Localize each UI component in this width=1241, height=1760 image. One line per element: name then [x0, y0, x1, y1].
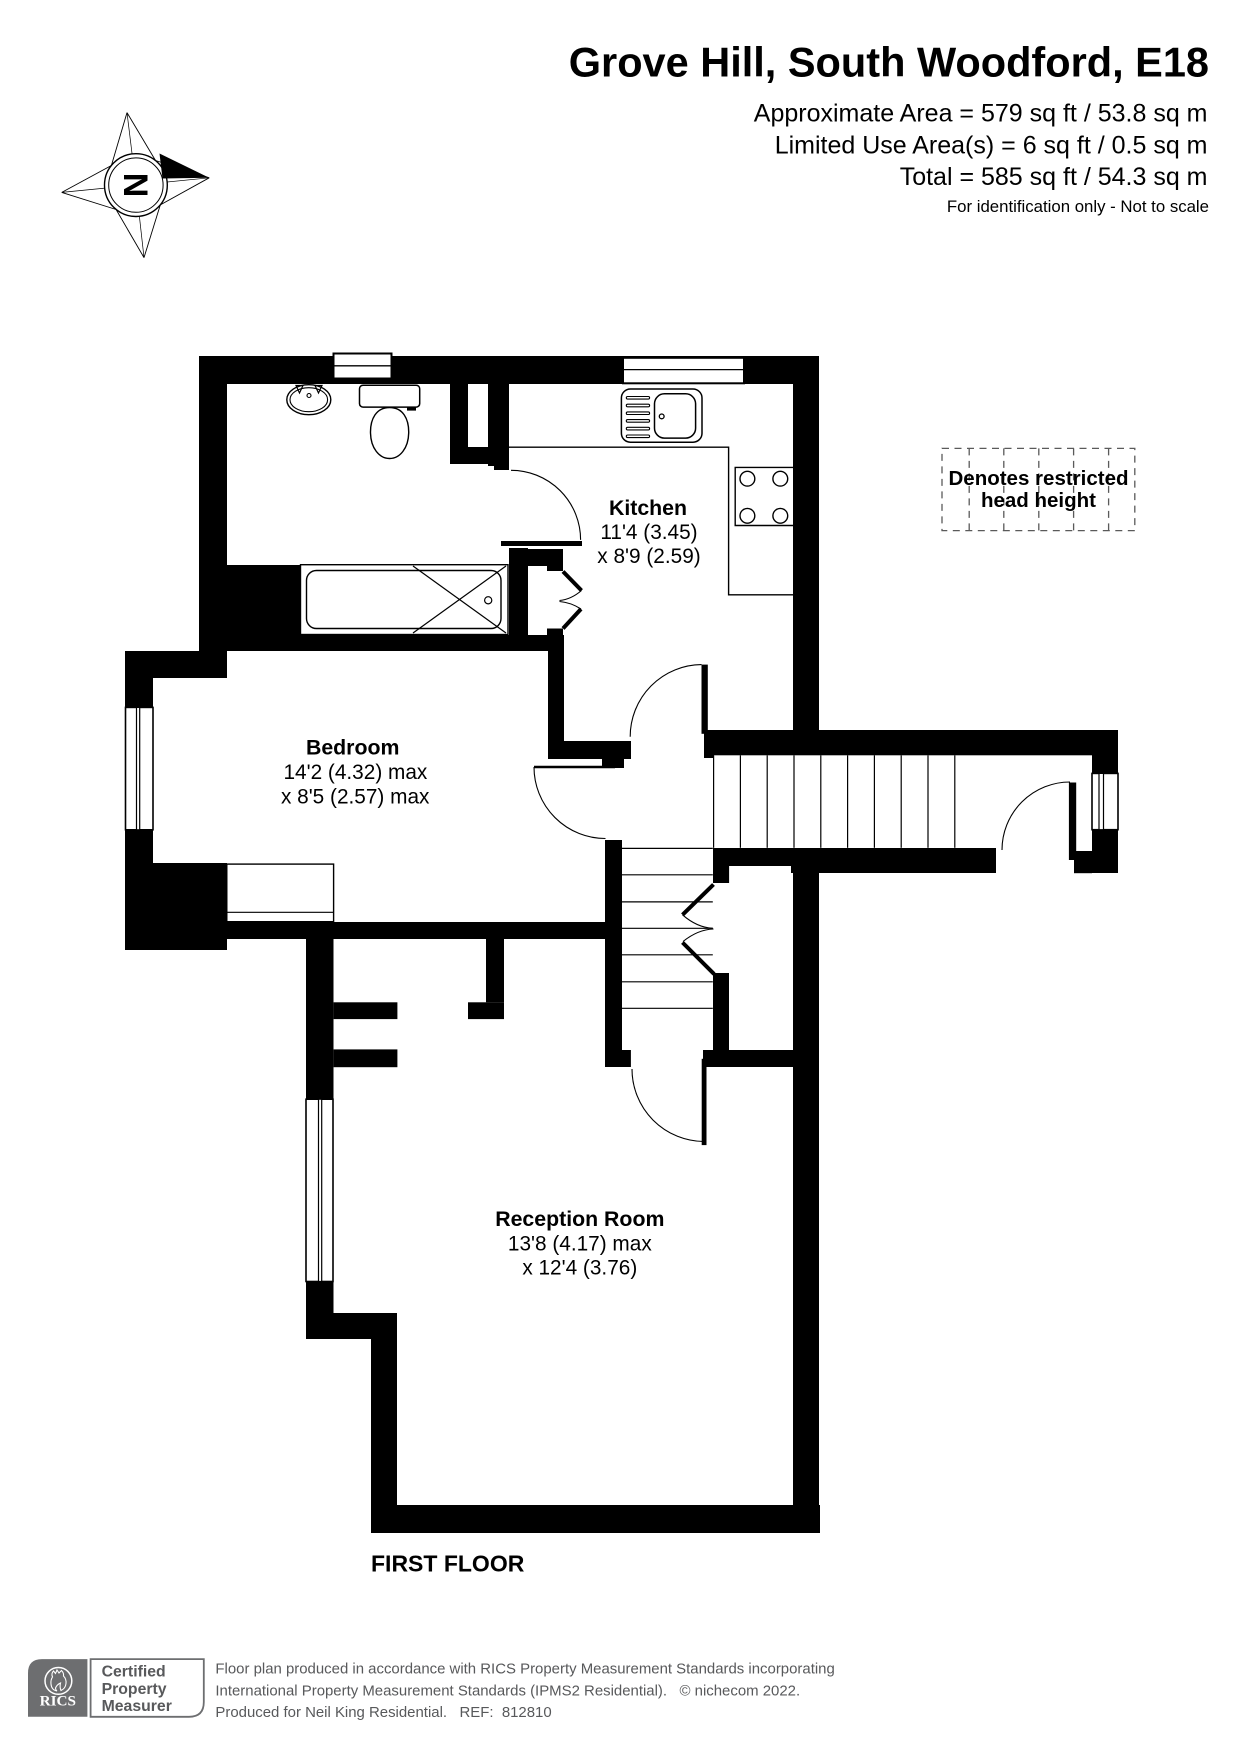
svg-text:N: N — [116, 173, 154, 198]
svg-text:RICS: RICS — [40, 1693, 76, 1710]
svg-text:13'8 (4.17) max: 13'8 (4.17) max — [508, 1233, 652, 1256]
svg-text:Property: Property — [102, 1681, 167, 1698]
svg-text:x 12'4 (3.76): x 12'4 (3.76) — [522, 1257, 637, 1280]
svg-text:FIRST FLOOR: FIRST FLOOR — [371, 1551, 525, 1577]
svg-text:For identification only - Not: For identification only - Not to scale — [947, 197, 1209, 216]
svg-text:Certified: Certified — [102, 1664, 166, 1681]
svg-text:Grove Hill, South Woodford, E1: Grove Hill, South Woodford, E18 — [569, 39, 1209, 86]
svg-text:Bedroom: Bedroom — [306, 736, 399, 760]
svg-text:Floor plan produced in accorda: Floor plan produced in accordance with R… — [215, 1661, 834, 1678]
svg-text:14'2 (4.32) max: 14'2 (4.32) max — [283, 761, 427, 784]
svg-text:Kitchen: Kitchen — [609, 496, 687, 520]
svg-text:Denotes restricted: Denotes restricted — [948, 467, 1128, 490]
svg-text:Produced for Neil King Residen: Produced for Neil King Residential. REF:… — [215, 1704, 551, 1721]
svg-text:head height: head height — [981, 489, 1096, 512]
svg-text:Measurer: Measurer — [102, 1698, 172, 1715]
svg-text:11'4 (3.45): 11'4 (3.45) — [600, 521, 697, 544]
svg-text:x 8'9 (2.59): x 8'9 (2.59) — [597, 545, 700, 568]
svg-text:Approximate Area = 579 sq ft /: Approximate Area = 579 sq ft / 53.8 sq m — [754, 100, 1208, 128]
svg-text:Total = 585 sq ft / 54.3 sq m: Total = 585 sq ft / 54.3 sq m — [900, 163, 1208, 191]
svg-text:Limited Use Area(s) = 6 sq ft: Limited Use Area(s) = 6 sq ft / 0.5 sq m — [775, 131, 1208, 159]
svg-text:International Property Measure: International Property Measurement Stand… — [215, 1682, 800, 1699]
svg-text:Reception Room: Reception Room — [495, 1207, 664, 1231]
svg-text:x 8'5 (2.57) max: x 8'5 (2.57) max — [281, 786, 430, 809]
